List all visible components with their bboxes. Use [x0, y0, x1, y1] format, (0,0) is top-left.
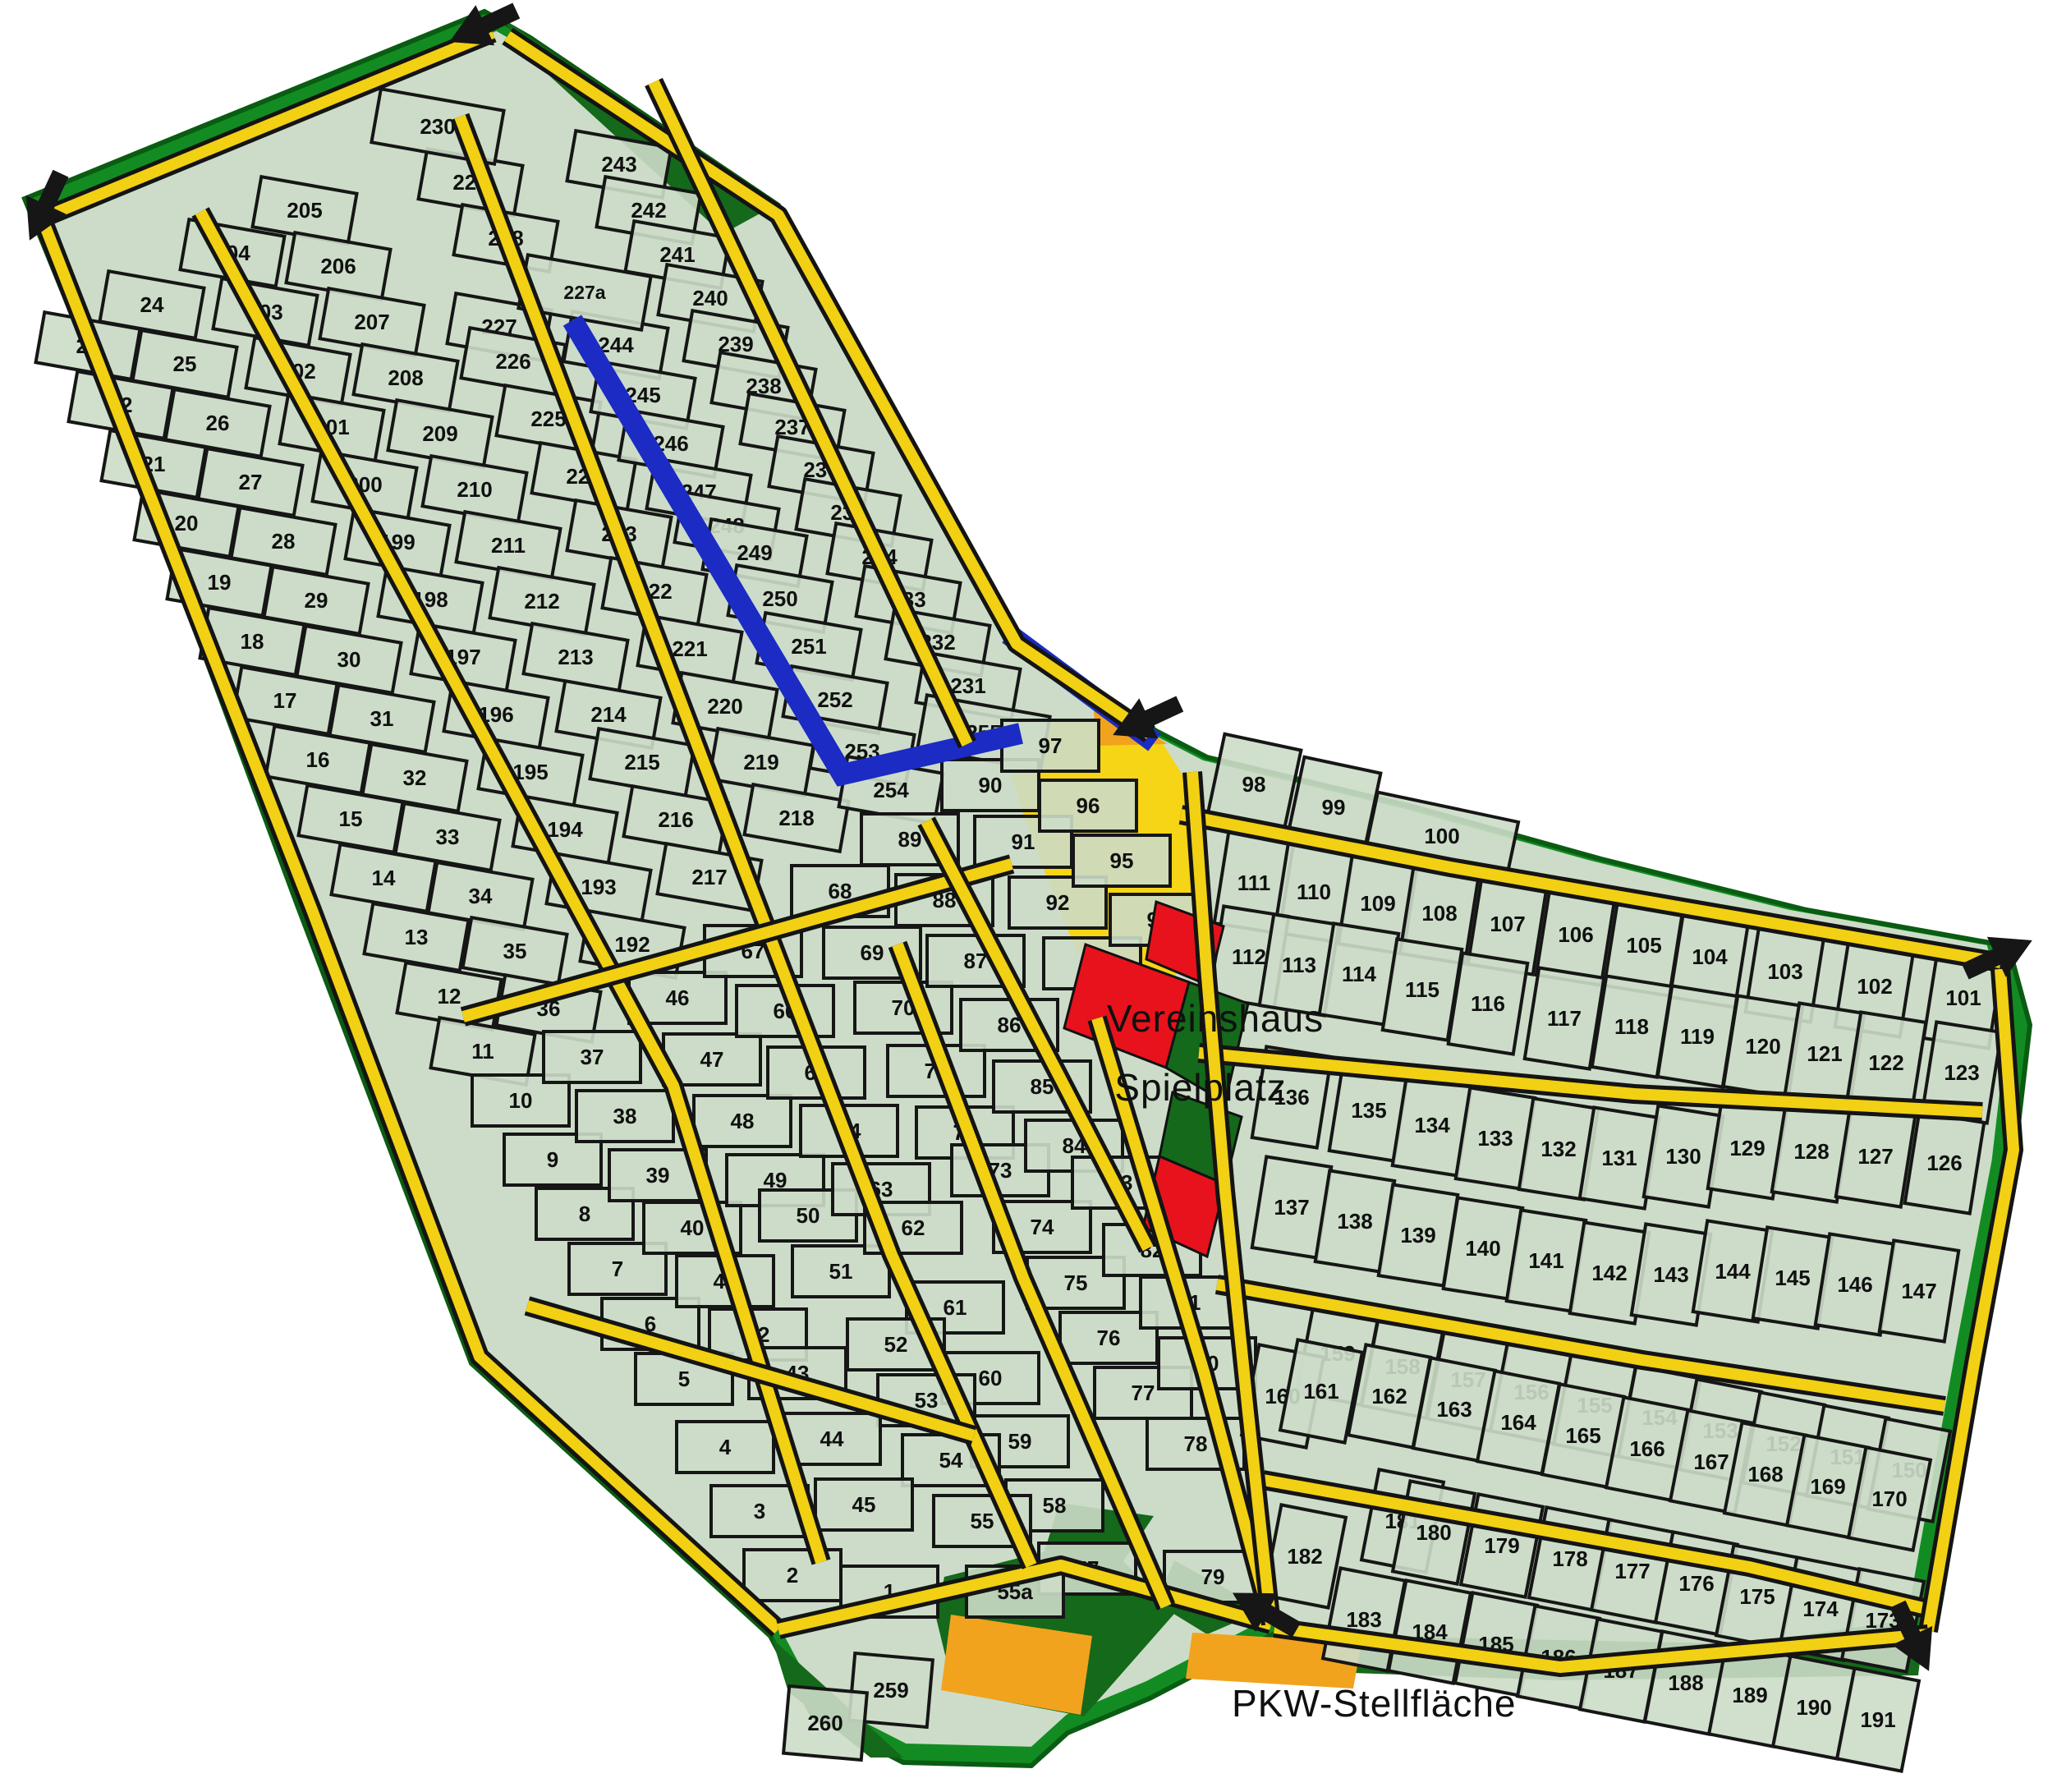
parcel-label-254: 254 — [873, 778, 909, 802]
parcel-label-107: 107 — [1490, 912, 1525, 936]
parcel-label-10: 10 — [509, 1088, 533, 1113]
parcel-label-206: 206 — [320, 254, 356, 278]
parcel-label-231: 231 — [950, 673, 985, 698]
parcel-label-179: 179 — [1484, 1533, 1519, 1558]
parcel-label-180: 180 — [1416, 1520, 1451, 1545]
parcel-label-108: 108 — [1421, 901, 1457, 926]
pkw-stellflaeche-label: PKW-Stellfläche — [1232, 1682, 1517, 1725]
parcel-label-2: 2 — [787, 1563, 798, 1588]
parcel-label-146: 146 — [1837, 1272, 1872, 1297]
parcel-label-166: 166 — [1629, 1436, 1664, 1461]
parcel-label-164: 164 — [1500, 1410, 1536, 1435]
parcel-label-140: 140 — [1465, 1236, 1500, 1261]
parcel-label-17: 17 — [273, 688, 297, 713]
parcel-label-18: 18 — [241, 629, 264, 654]
parcel-label-137: 137 — [1274, 1195, 1309, 1220]
parcel-label-9: 9 — [547, 1147, 558, 1172]
parcel-label-4: 4 — [719, 1435, 732, 1459]
parcel-label-46: 46 — [666, 986, 690, 1010]
parcel-label-13: 13 — [405, 925, 429, 949]
parcel-label-139: 139 — [1400, 1223, 1435, 1248]
site-plan-page: 2322212019181716151413121124252627282930… — [0, 0, 2057, 1792]
parcel-label-110: 110 — [1297, 880, 1331, 904]
spielplatz-label: Spielplatz — [1114, 1066, 1286, 1109]
parcel-label-220: 220 — [707, 694, 742, 719]
parcel-label-170: 170 — [1871, 1486, 1907, 1511]
parcel-label-91: 91 — [1012, 829, 1035, 854]
parcel-label-145: 145 — [1775, 1266, 1810, 1290]
parcel-label-118: 118 — [1614, 1014, 1649, 1039]
parcel-label-11: 11 — [471, 1039, 494, 1064]
parcel-130: 130 — [1644, 1105, 1724, 1206]
parcel-label-60: 60 — [979, 1366, 1003, 1390]
allotment-map: 2322212019181716151413121124252627282930… — [0, 0, 2057, 1792]
parcel-label-106: 106 — [1558, 922, 1593, 947]
parcel-label-221: 221 — [672, 636, 707, 661]
parcel-label-116: 116 — [1471, 991, 1505, 1016]
parcel-label-134: 134 — [1414, 1113, 1450, 1137]
parcel-label-95: 95 — [1110, 848, 1134, 873]
parcel-label-78: 78 — [1184, 1431, 1208, 1456]
parcel-label-62: 62 — [902, 1215, 925, 1240]
parcel-label-29: 29 — [305, 588, 328, 613]
parcel-label-109: 109 — [1360, 891, 1395, 916]
parcel-label-252: 252 — [817, 687, 852, 712]
parcel-label-251: 251 — [791, 634, 826, 659]
parcel-label-216: 216 — [658, 807, 693, 832]
parcel-label-209: 209 — [422, 421, 457, 446]
parcel-127: 127 — [1836, 1105, 1916, 1206]
parcel-label-205: 205 — [287, 198, 322, 223]
parcel-label-162: 162 — [1371, 1384, 1407, 1408]
parcel-label-147: 147 — [1901, 1279, 1936, 1303]
parcel-label-92: 92 — [1046, 890, 1070, 915]
parcel-label-69: 69 — [861, 940, 884, 965]
parcel-label-19: 19 — [208, 570, 232, 595]
parcel-label-242: 242 — [631, 198, 666, 223]
parcel-label-98: 98 — [1242, 772, 1266, 797]
parcel-label-144: 144 — [1715, 1259, 1751, 1284]
vereinshaus-label: Vereinshaus — [1107, 997, 1324, 1040]
parcel-label-77: 77 — [1132, 1381, 1155, 1405]
parcel-label-50: 50 — [797, 1203, 820, 1228]
parcel-label-226: 226 — [495, 349, 530, 374]
parcel-label-90: 90 — [979, 773, 1003, 797]
parcel-label-230: 230 — [420, 114, 455, 139]
parcel-label-191: 191 — [1860, 1707, 1895, 1732]
parcel-label-15: 15 — [339, 806, 363, 831]
parcel-label-214: 214 — [590, 702, 627, 727]
parcel-label-25: 25 — [173, 352, 197, 376]
parcel-label-31: 31 — [370, 706, 394, 731]
parcel-label-5: 5 — [678, 1367, 690, 1391]
parcel-label-215: 215 — [624, 750, 659, 774]
parcel-label-8: 8 — [579, 1202, 590, 1226]
parcel-label-192: 192 — [614, 932, 650, 957]
parcel-label-243: 243 — [601, 152, 636, 177]
parcel-label-114: 114 — [1342, 962, 1376, 986]
parcel-label-218: 218 — [778, 806, 814, 830]
parcel-label-168: 168 — [1747, 1462, 1783, 1486]
parcel-label-188: 188 — [1668, 1670, 1703, 1695]
parcel-label-52: 52 — [884, 1332, 908, 1357]
parcel-label-54: 54 — [939, 1448, 963, 1473]
parcel-label-131: 131 — [1601, 1146, 1637, 1170]
parcel-label-194: 194 — [547, 817, 583, 842]
parcel-label-259: 259 — [873, 1678, 908, 1702]
parcel-label-105: 105 — [1626, 933, 1661, 958]
parcel-260: 260 — [783, 1686, 867, 1760]
parcel-label-133: 133 — [1477, 1126, 1513, 1151]
parcel-label-74: 74 — [1031, 1215, 1054, 1239]
parcel-label-128: 128 — [1793, 1139, 1829, 1164]
parcel-label-113: 113 — [1282, 953, 1316, 977]
parcel-116: 116 — [1449, 953, 1528, 1054]
parcel-label-104: 104 — [1692, 944, 1728, 969]
parcel-label-143: 143 — [1653, 1262, 1688, 1287]
parcel-label-101: 101 — [1945, 986, 1981, 1010]
parcel-label-3: 3 — [754, 1499, 765, 1523]
parcel-37: 37 — [544, 1032, 641, 1082]
parcel-117: 117 — [1525, 967, 1605, 1068]
parcel-label-59: 59 — [1008, 1429, 1032, 1454]
parcel-label-34: 34 — [469, 884, 493, 908]
parcel-label-163: 163 — [1436, 1397, 1472, 1422]
parcel-147: 147 — [1880, 1240, 1959, 1341]
parcel-label-126: 126 — [1926, 1151, 1962, 1175]
parcel-label-190: 190 — [1796, 1695, 1831, 1720]
parcel-label-61: 61 — [944, 1295, 967, 1320]
parcel-label-208: 208 — [388, 365, 423, 390]
parcel-label-177: 177 — [1614, 1559, 1650, 1583]
parcel-label-14: 14 — [372, 866, 396, 890]
parcel-label-129: 129 — [1729, 1136, 1765, 1160]
parcel-label-75: 75 — [1064, 1270, 1088, 1295]
parcel-label-212: 212 — [524, 589, 559, 613]
parcel-label-37: 37 — [581, 1045, 604, 1069]
parcel-label-193: 193 — [581, 875, 616, 899]
parcel-label-167: 167 — [1693, 1450, 1729, 1474]
parcel-4: 4 — [677, 1422, 774, 1473]
parcel-label-174: 174 — [1802, 1597, 1839, 1621]
parcel-label-103: 103 — [1767, 959, 1802, 984]
parcel-label-111: 111 — [1237, 871, 1271, 895]
parcel-label-89: 89 — [898, 827, 922, 852]
parcel-96: 96 — [1040, 780, 1136, 831]
parcel-label-141: 141 — [1528, 1248, 1563, 1273]
parcel-label-32: 32 — [403, 765, 427, 790]
parcel-label-178: 178 — [1552, 1546, 1587, 1571]
parcel-label-123: 123 — [1944, 1060, 1979, 1085]
parcel-label-169: 169 — [1810, 1474, 1845, 1499]
parcel-label-40: 40 — [681, 1215, 705, 1240]
parcel-label-210: 210 — [457, 477, 492, 502]
parcel-label-45: 45 — [852, 1492, 876, 1517]
parcel-label-35: 35 — [503, 939, 527, 963]
parcel-label-182: 182 — [1287, 1544, 1322, 1569]
parcel-label-127: 127 — [1857, 1144, 1893, 1169]
parcel-label-51: 51 — [829, 1259, 853, 1284]
parcel-label-28: 28 — [272, 529, 296, 554]
parcel-label-99: 99 — [1322, 795, 1346, 820]
parcel-label-260: 260 — [807, 1711, 843, 1735]
parcel-label-213: 213 — [558, 645, 593, 669]
parcel-label-96: 96 — [1077, 793, 1100, 818]
parcel-label-33: 33 — [436, 825, 460, 849]
parcel-label-241: 241 — [659, 242, 695, 267]
parcel-label-132: 132 — [1540, 1137, 1576, 1161]
parcel-label-217: 217 — [691, 865, 727, 889]
parcel-label-12: 12 — [438, 984, 461, 1009]
parcel-label-138: 138 — [1337, 1209, 1372, 1234]
parcel-label-183: 183 — [1346, 1607, 1381, 1632]
parcel-label-189: 189 — [1732, 1683, 1767, 1707]
parcel-label-7: 7 — [612, 1257, 623, 1281]
parcel-label-122: 122 — [1868, 1050, 1903, 1075]
parcel-label-240: 240 — [692, 286, 728, 310]
parcel-95: 95 — [1073, 835, 1170, 886]
parcel-label-27: 27 — [239, 470, 263, 494]
parcel-label-130: 130 — [1665, 1144, 1701, 1169]
parcel-label-20: 20 — [175, 511, 199, 535]
parcel-label-79: 79 — [1201, 1565, 1225, 1589]
parcel-label-250: 250 — [762, 586, 797, 611]
parcel-label-121: 121 — [1807, 1041, 1842, 1066]
parcel-label-161: 161 — [1303, 1379, 1338, 1404]
parcel-label-44: 44 — [820, 1427, 844, 1451]
parcel-label-100: 100 — [1424, 824, 1459, 848]
parcel-126: 126 — [1905, 1112, 1985, 1213]
parcel-label-135: 135 — [1351, 1098, 1386, 1123]
parcel-label-24: 24 — [140, 292, 164, 317]
parcel-45: 45 — [815, 1479, 912, 1530]
parcel-label-48: 48 — [731, 1109, 755, 1133]
parcel-label-53: 53 — [915, 1388, 939, 1413]
parcel-label-176: 176 — [1678, 1571, 1714, 1596]
parcel-label-120: 120 — [1745, 1034, 1780, 1059]
parcel-label-165: 165 — [1565, 1423, 1600, 1448]
parcel-label-227a: 227a — [563, 282, 605, 303]
parcel-label-55: 55 — [971, 1509, 994, 1533]
parcel-label-58: 58 — [1043, 1493, 1067, 1518]
parcel-label-117: 117 — [1547, 1006, 1582, 1031]
parcel-label-115: 115 — [1405, 977, 1439, 1002]
parcel-label-207: 207 — [354, 310, 389, 334]
parcel-label-39: 39 — [646, 1163, 670, 1188]
parcel-label-219: 219 — [743, 750, 778, 774]
parcel-label-30: 30 — [337, 647, 361, 672]
parcel-label-119: 119 — [1680, 1024, 1715, 1049]
parcel-label-47: 47 — [700, 1047, 724, 1072]
parcel-38: 38 — [576, 1091, 673, 1142]
parcel-label-102: 102 — [1857, 974, 1892, 999]
parcel-label-97: 97 — [1039, 733, 1063, 758]
parcel-label-211: 211 — [491, 533, 526, 558]
parcel-label-16: 16 — [306, 747, 330, 772]
parcel-label-76: 76 — [1097, 1326, 1121, 1350]
parcel-48: 48 — [694, 1096, 791, 1146]
parcel-label-38: 38 — [613, 1104, 637, 1128]
parcel-label-249: 249 — [737, 540, 772, 565]
parcel-label-112: 112 — [1232, 944, 1266, 969]
parcel-label-26: 26 — [206, 411, 230, 435]
parcel-label-175: 175 — [1739, 1584, 1775, 1609]
parcel-label-142: 142 — [1591, 1261, 1627, 1285]
